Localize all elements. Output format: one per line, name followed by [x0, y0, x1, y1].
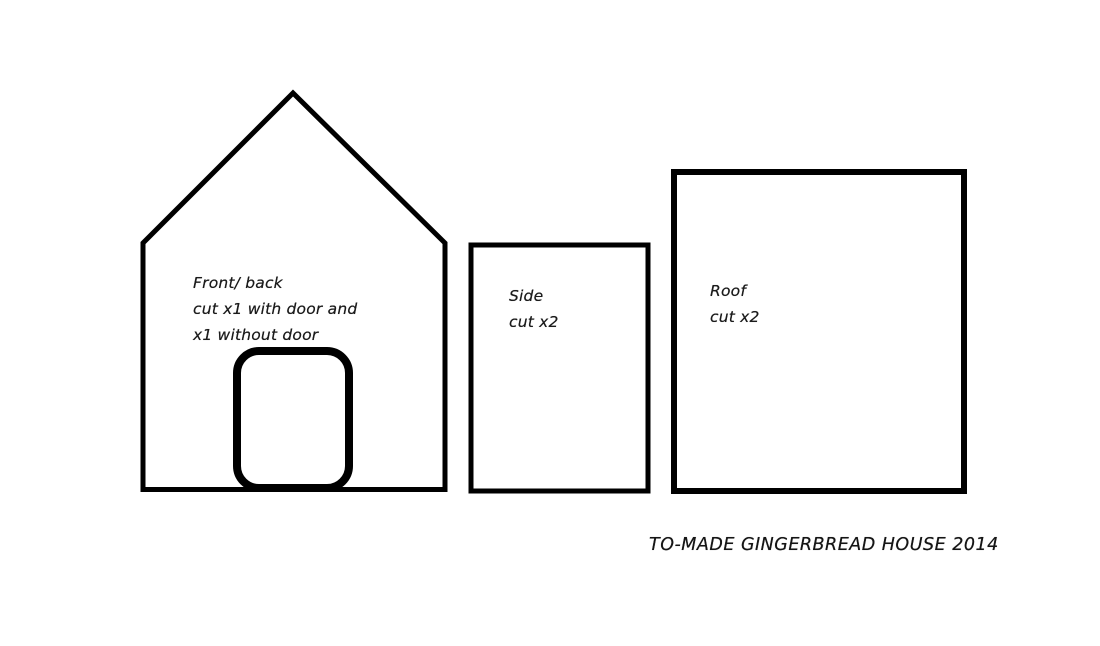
front-back-label-line: Front/ back [193, 270, 357, 296]
roof-label-line: Roof [710, 278, 760, 304]
door-cutout-outline [237, 351, 349, 488]
front-back-label-line: x1 without door [193, 322, 357, 348]
gingerbread-pattern-canvas: Front/ back cut x1 with door and x1 with… [0, 0, 1100, 646]
roof-panel-label: Roof cut x2 [710, 278, 760, 330]
side-label-line: cut x2 [509, 309, 559, 335]
pattern-title-caption: TO-MADE GINGERBREAD HOUSE 2014 [649, 535, 999, 555]
side-panel-outline [471, 245, 648, 491]
front-back-panel-label: Front/ back cut x1 with door and x1 with… [193, 270, 357, 348]
side-panel-label: Side cut x2 [509, 283, 559, 335]
roof-label-line: cut x2 [710, 304, 760, 330]
front-back-label-line: cut x1 with door and [193, 296, 357, 322]
roof-panel-outline [674, 172, 964, 491]
side-label-line: Side [509, 283, 559, 309]
